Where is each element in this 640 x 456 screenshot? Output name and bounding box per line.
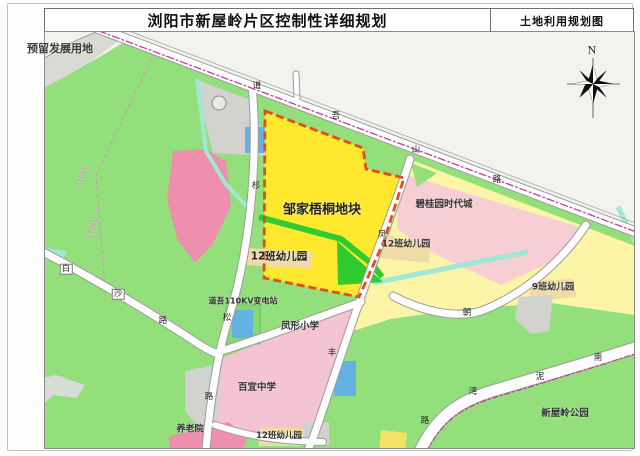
planning-map-document: 浏阳市新屋岭片区控制性详细规划 土地利用规划图	[0, 0, 640, 456]
substation-blue	[232, 310, 253, 338]
title-bar: 浏阳市新屋岭片区控制性详细规划 土地利用规划图	[44, 8, 634, 33]
page-title: 浏阳市新屋岭片区控制性详细规划	[45, 9, 490, 32]
map-canvas[interactable]	[44, 31, 635, 449]
parcel-yellow-bottom	[379, 430, 407, 448]
map-type-label: 土地利用规划图	[490, 9, 633, 32]
facility-circle-icon	[212, 96, 226, 110]
map-graphics	[45, 32, 634, 448]
